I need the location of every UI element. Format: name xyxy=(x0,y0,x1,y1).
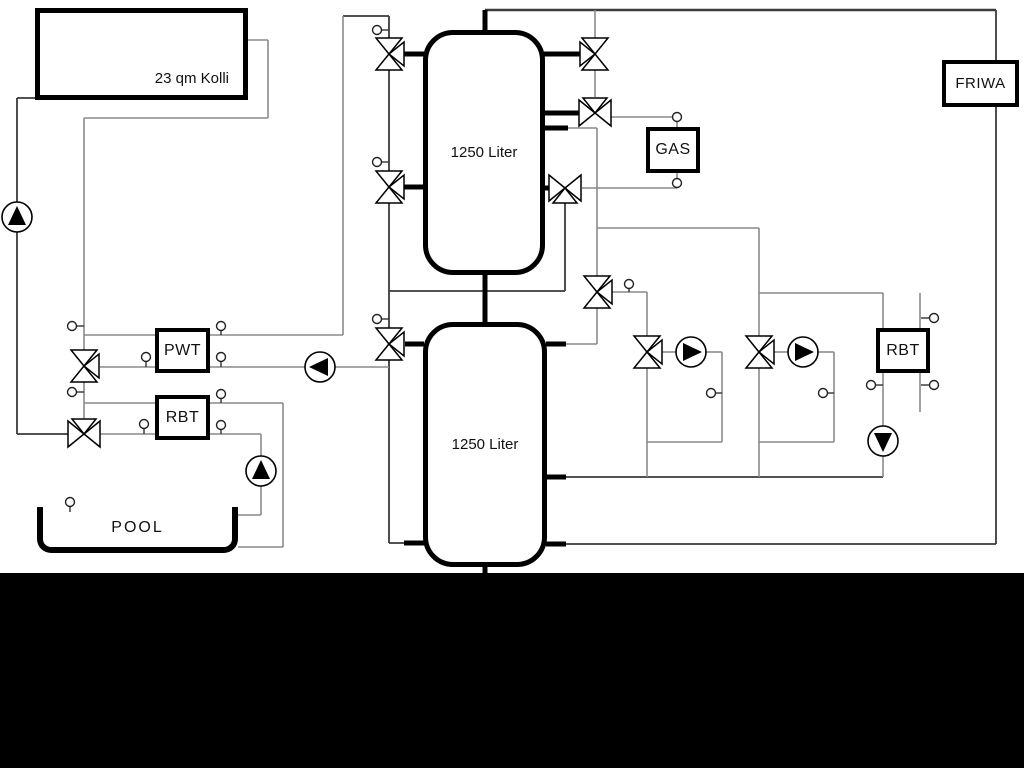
valve-tank1-right-mid xyxy=(579,98,611,126)
temp-sensor-icon xyxy=(140,420,149,435)
temp-sensor-icon xyxy=(142,353,151,368)
valve-pool-return xyxy=(68,419,100,447)
valve-tank1-right-top xyxy=(580,38,608,70)
pump-heating-circuit-1 xyxy=(676,337,706,367)
pool-label: POOL xyxy=(111,519,163,537)
pool-basin: POOL xyxy=(37,507,238,553)
pump-pool xyxy=(246,456,276,486)
pump-heating-circuit-2 xyxy=(788,337,818,367)
buffer-tank-1-label: 1250 Liter xyxy=(451,144,518,161)
temp-sensor-icon xyxy=(921,314,939,323)
valve-heating-circuit-1 xyxy=(634,336,662,368)
buffer-tank-2-label: 1250 Liter xyxy=(452,436,519,453)
pump-solar xyxy=(2,202,32,232)
footer-band xyxy=(0,573,1024,768)
solar-collector-box: 23 qm Kolli xyxy=(35,8,248,100)
friwa-station-box: FRIWA xyxy=(942,60,1019,107)
temp-sensor-icon xyxy=(217,322,226,336)
pump-pwt xyxy=(305,352,335,382)
schematic-canvas: 23 qm Kolli 1250 Liter 1250 Liter GAS PW… xyxy=(0,0,1024,768)
pwt-heat-exchanger-box: PWT xyxy=(155,328,210,373)
valve-tank1-left-top xyxy=(376,38,404,70)
valve-heating-circuit-2 xyxy=(746,336,774,368)
temp-sensor-icon xyxy=(921,381,939,390)
temp-sensor-icon xyxy=(217,421,226,435)
solar-collector-label: 23 qm Kolli xyxy=(155,70,229,87)
temp-sensor-icon xyxy=(819,389,835,398)
temp-sensor-icon xyxy=(373,158,390,167)
pwt-label: PWT xyxy=(164,342,201,360)
gas-boiler-label: GAS xyxy=(655,141,690,159)
valve-tank1-left-bottom xyxy=(376,171,404,203)
valve-tank1-right-bottom xyxy=(549,175,581,203)
temp-sensor-icon xyxy=(68,388,85,397)
valve-tank2-left xyxy=(376,328,404,360)
pump-rbt xyxy=(868,426,898,456)
buffer-tank-2: 1250 Liter xyxy=(423,322,547,567)
temp-sensor-icon xyxy=(217,390,226,404)
buffer-tank-1: 1250 Liter xyxy=(423,30,545,275)
gas-boiler-box: GAS xyxy=(646,127,700,173)
temp-sensor-icon xyxy=(373,315,390,324)
friwa-label: FRIWA xyxy=(955,75,1005,92)
rbt-right-heat-exchanger-box: RBT xyxy=(876,328,930,373)
rbt-left-label: RBT xyxy=(166,409,200,427)
rbt-right-label: RBT xyxy=(886,342,920,360)
temp-sensor-icon xyxy=(673,179,682,188)
temp-sensor-icon xyxy=(625,280,634,293)
temp-sensor-icon xyxy=(867,381,884,390)
temp-sensor-icon xyxy=(68,322,85,331)
valve-distribution xyxy=(584,276,612,308)
temp-sensor-icon xyxy=(373,26,390,35)
temp-sensor-icon xyxy=(217,353,226,368)
rbt-left-heat-exchanger-box: RBT xyxy=(155,395,210,440)
valve-pwt-return xyxy=(71,350,99,382)
temp-sensor-icon xyxy=(673,113,682,122)
temp-sensor-icon xyxy=(707,389,723,398)
